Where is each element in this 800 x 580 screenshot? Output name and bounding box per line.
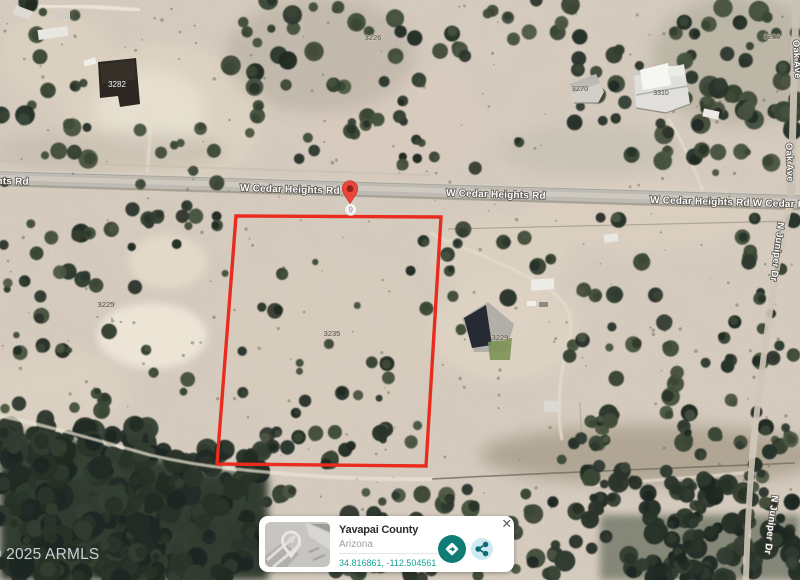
svg-text:3310: 3310 [653,90,669,97]
svg-text:3235: 3235 [324,329,341,338]
svg-text:W Cedar Heights Rd: W Cedar Heights Rd [0,174,29,188]
svg-text:3226: 3226 [764,32,781,41]
svg-text:Oak Ave: Oak Ave [783,143,795,182]
svg-text:3226: 3226 [365,33,382,42]
svg-text:3225: 3225 [98,300,115,309]
svg-text:9: 9 [348,206,353,215]
svg-text:3270: 3270 [572,84,589,93]
svg-text:3282: 3282 [108,80,126,89]
svg-text:3229: 3229 [492,333,509,342]
